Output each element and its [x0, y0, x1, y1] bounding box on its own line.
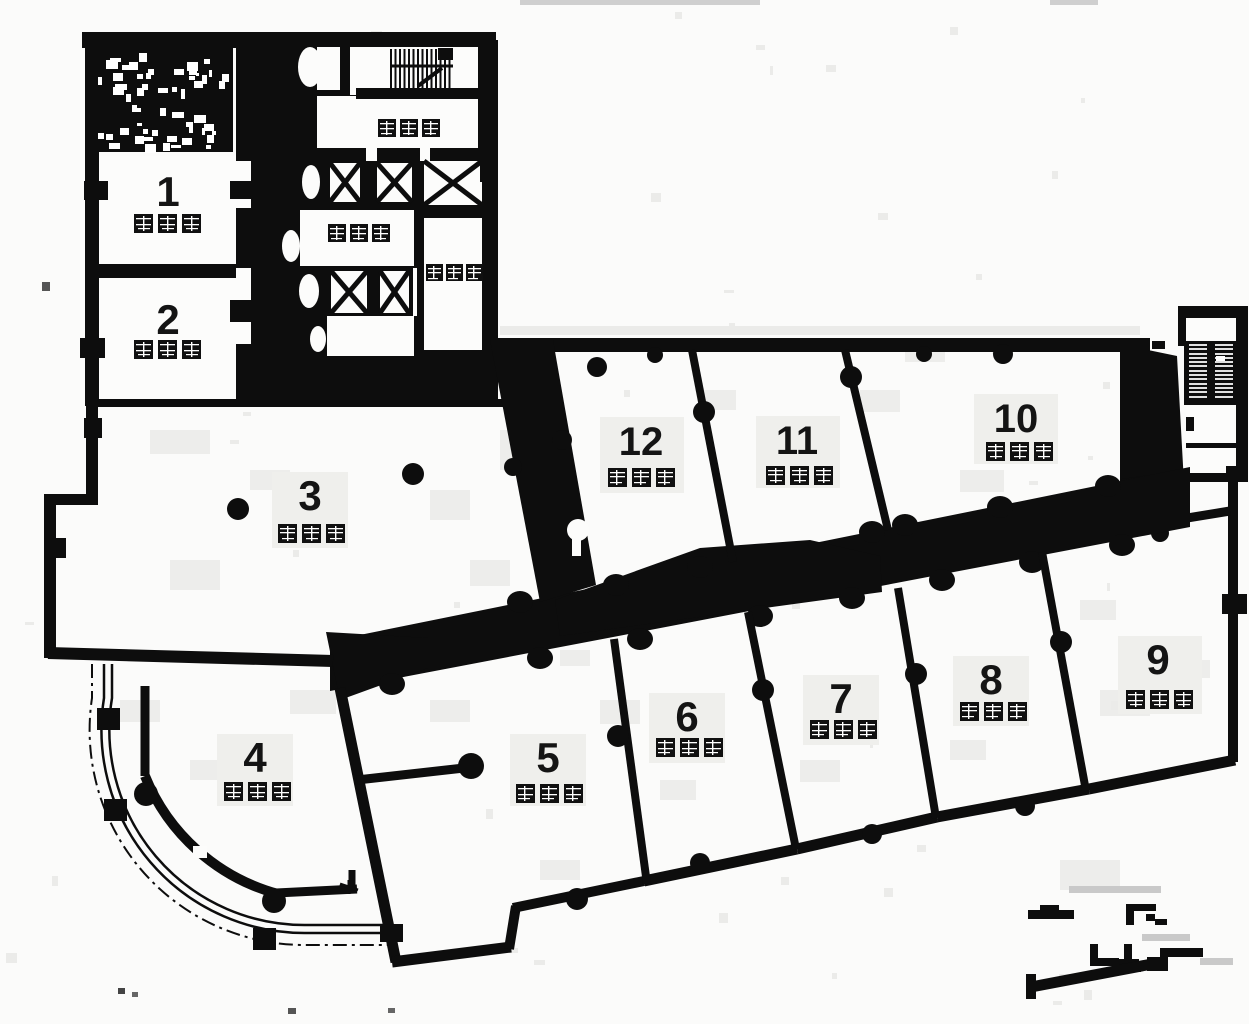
svg-text:6: 6: [675, 693, 698, 740]
svg-text:12: 12: [619, 420, 664, 464]
svg-text:2: 2: [156, 296, 179, 343]
svg-text:1: 1: [156, 168, 179, 215]
svg-text:5: 5: [536, 734, 559, 781]
svg-text:9: 9: [1146, 636, 1169, 683]
svg-text:7: 7: [829, 675, 852, 722]
svg-text:8: 8: [979, 656, 1002, 703]
svg-text:4: 4: [243, 734, 267, 781]
svg-text:3: 3: [298, 472, 321, 519]
svg-text:10: 10: [994, 397, 1039, 441]
svg-text:11: 11: [776, 419, 818, 463]
